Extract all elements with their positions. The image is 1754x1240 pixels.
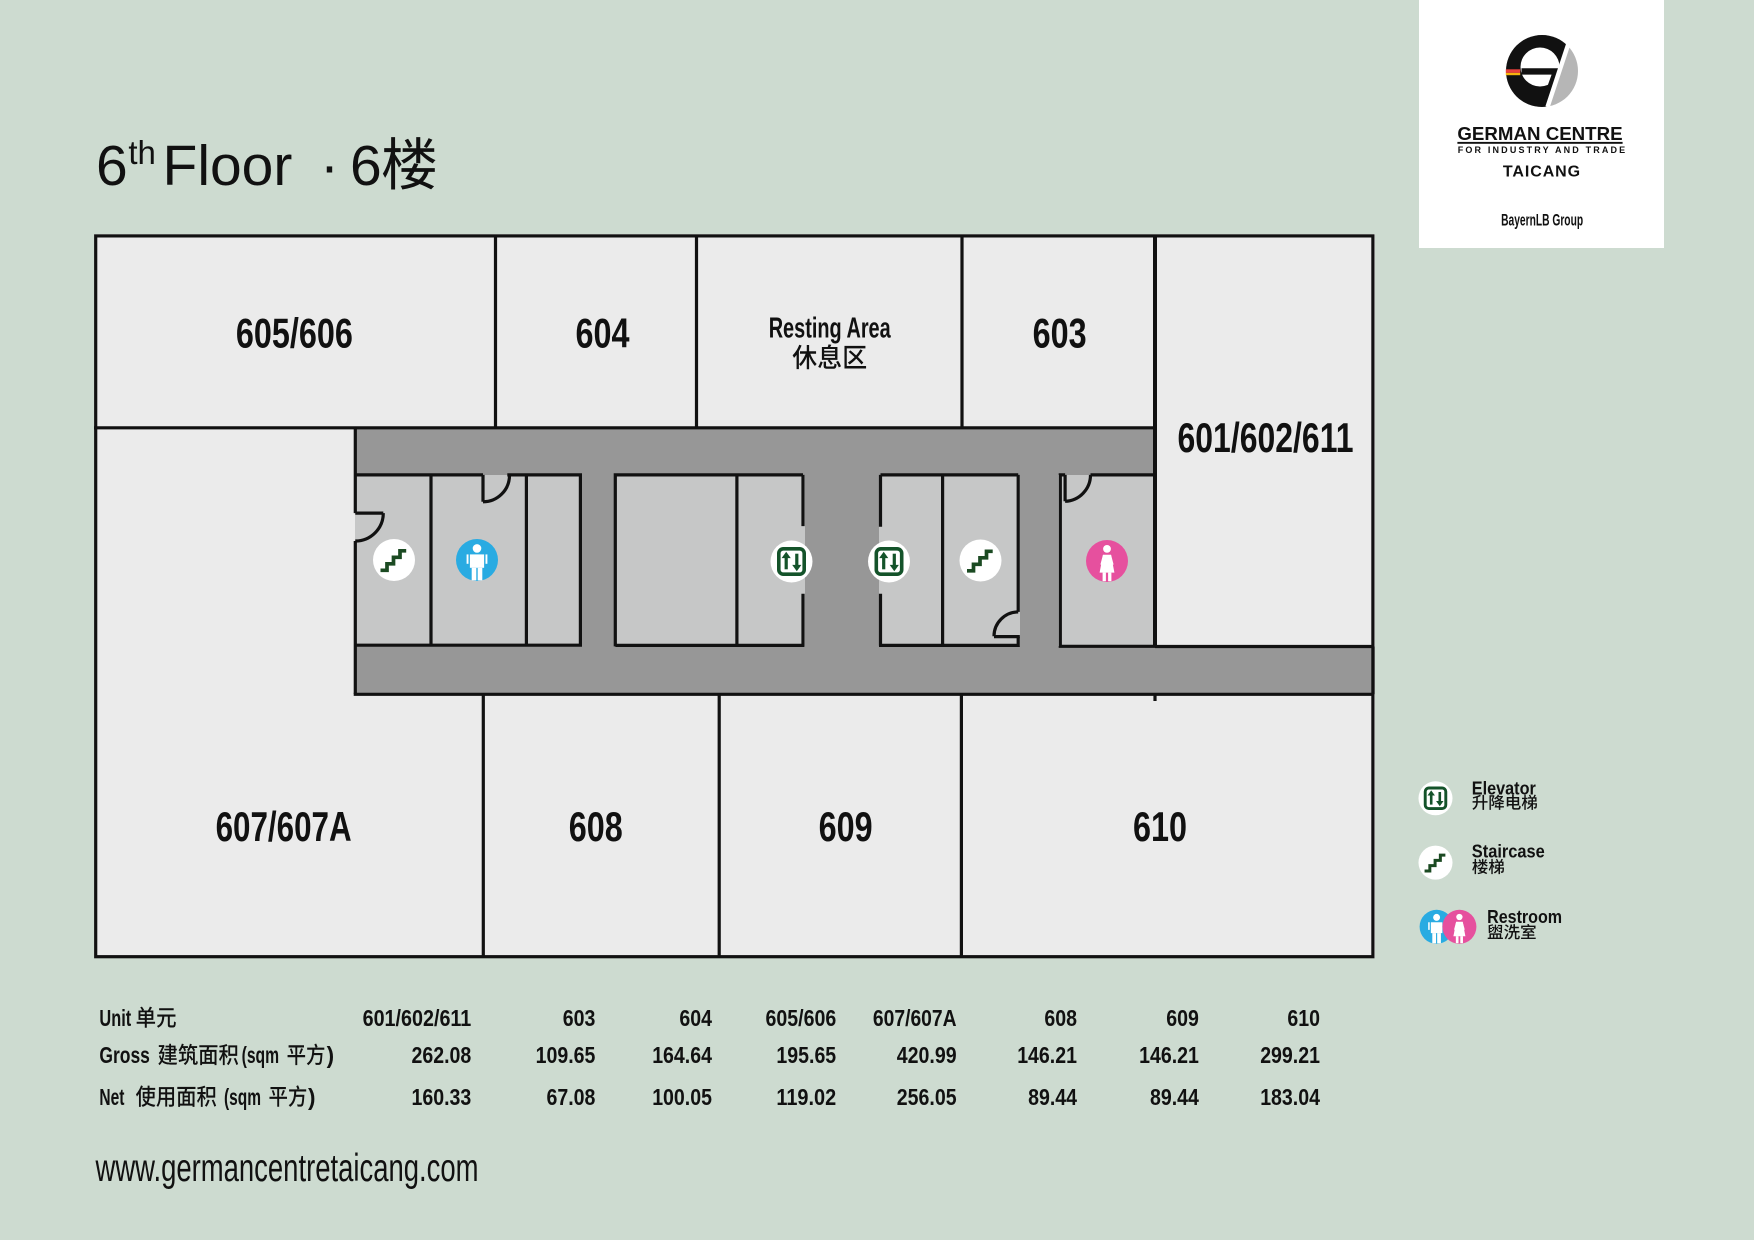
svg-text:6: 6 bbox=[350, 134, 382, 198]
svg-text:607/607A: 607/607A bbox=[216, 803, 352, 850]
svg-text:www.germancentretaicang.com: www.germancentretaicang.com bbox=[95, 1147, 479, 1190]
svg-text:Resting Area: Resting Area bbox=[769, 312, 892, 344]
svg-text:BayernLB Group: BayernLB Group bbox=[1501, 211, 1583, 229]
svg-text:195.65: 195.65 bbox=[776, 1042, 836, 1068]
svg-text:th: th bbox=[128, 134, 156, 171]
svg-text:164.64: 164.64 bbox=[652, 1042, 712, 1068]
svg-text:256.05: 256.05 bbox=[897, 1084, 957, 1110]
svg-text:604: 604 bbox=[679, 1005, 712, 1031]
svg-text:299.21: 299.21 bbox=[1260, 1042, 1320, 1068]
svg-text:160.33: 160.33 bbox=[412, 1084, 472, 1110]
svg-text:Gross: Gross bbox=[99, 1042, 149, 1068]
svg-text:610: 610 bbox=[1133, 803, 1187, 850]
svg-text:TAICANG: TAICANG bbox=[1503, 163, 1580, 180]
svg-text:183.04: 183.04 bbox=[1260, 1084, 1320, 1110]
svg-text:605/606: 605/606 bbox=[236, 310, 353, 357]
svg-text:Unit: Unit bbox=[99, 1005, 131, 1031]
svg-text:(sqm: (sqm bbox=[224, 1084, 261, 1110]
svg-text:GERMAN CENTRE: GERMAN CENTRE bbox=[1457, 123, 1622, 144]
svg-text:67.08: 67.08 bbox=[547, 1084, 596, 1110]
svg-text:604: 604 bbox=[576, 310, 630, 357]
svg-text:89.44: 89.44 bbox=[1028, 1084, 1077, 1110]
svg-text:Staircase: Staircase bbox=[1472, 842, 1545, 862]
svg-text:605/606: 605/606 bbox=[766, 1005, 837, 1031]
svg-text:601/602/611: 601/602/611 bbox=[1178, 414, 1354, 461]
svg-text:119.02: 119.02 bbox=[776, 1084, 836, 1110]
svg-text:608: 608 bbox=[1044, 1005, 1077, 1031]
svg-text:608: 608 bbox=[569, 803, 623, 850]
svg-text:420.99: 420.99 bbox=[897, 1042, 957, 1068]
svg-text:609: 609 bbox=[1166, 1005, 1199, 1031]
svg-text:603: 603 bbox=[563, 1005, 596, 1031]
svg-text:603: 603 bbox=[1033, 310, 1087, 357]
svg-text:6: 6 bbox=[96, 134, 128, 198]
svg-text:): ) bbox=[327, 1042, 335, 1068]
svg-text:Restroom: Restroom bbox=[1487, 907, 1562, 927]
svg-text:607/607A: 607/607A bbox=[873, 1005, 957, 1031]
svg-text:): ) bbox=[308, 1084, 316, 1110]
svg-text:146.21: 146.21 bbox=[1017, 1042, 1077, 1068]
svg-text:262.08: 262.08 bbox=[412, 1042, 472, 1068]
svg-text:Floor: Floor bbox=[163, 134, 293, 198]
svg-text:·: · bbox=[320, 134, 339, 198]
svg-text:Net: Net bbox=[99, 1084, 124, 1110]
svg-text:601/602/611: 601/602/611 bbox=[363, 1005, 472, 1031]
svg-text:Elevator: Elevator bbox=[1472, 778, 1536, 798]
svg-text:146.21: 146.21 bbox=[1139, 1042, 1199, 1068]
svg-text:100.05: 100.05 bbox=[652, 1084, 712, 1110]
svg-text:609: 609 bbox=[819, 803, 873, 850]
svg-text:89.44: 89.44 bbox=[1150, 1084, 1199, 1110]
svg-text:610: 610 bbox=[1287, 1005, 1320, 1031]
svg-text:109.65: 109.65 bbox=[536, 1042, 596, 1068]
svg-text:(sqm: (sqm bbox=[242, 1042, 280, 1068]
